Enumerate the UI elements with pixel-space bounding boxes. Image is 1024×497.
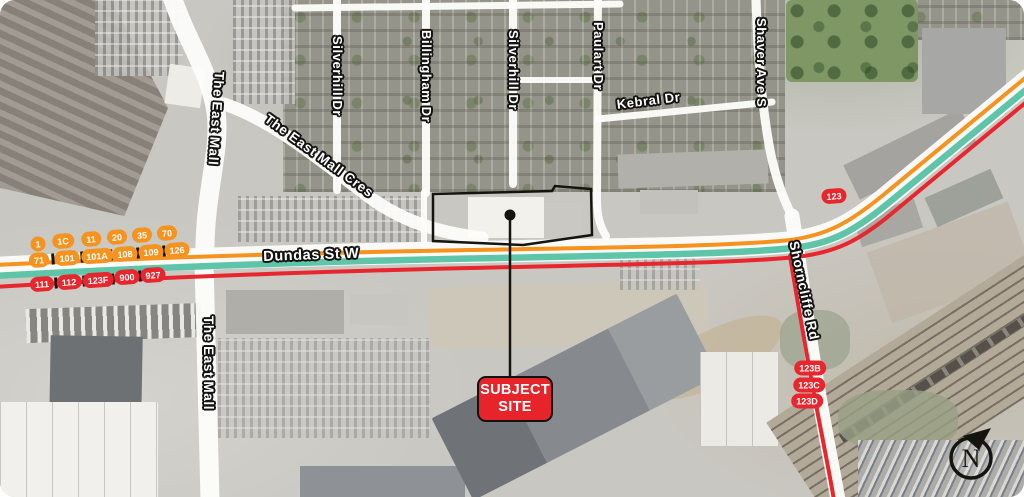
street-label-silverhill-dr-west: Silverhill Dr — [331, 36, 344, 116]
route-badge: 109 — [138, 244, 164, 261]
route-badge: 126 — [164, 242, 190, 259]
street-label-silverhill-dr-east: Silverhill Dr — [507, 30, 520, 110]
route-badge-123d: 123D — [791, 394, 823, 409]
subject-site-label: SUBJECT SITE — [477, 376, 553, 422]
route-badge: 112 — [56, 274, 82, 291]
street-label-dundas-st-w: Dundas St W — [263, 247, 359, 265]
subject-site-dot — [505, 210, 516, 221]
route-badge: 101 — [54, 250, 80, 267]
route-badge: 123F — [82, 271, 113, 288]
street-label-shaver-ave-s: Shaver Ave S — [755, 18, 768, 107]
compass-n-label: N — [962, 444, 981, 473]
subject-site-label-line1: SUBJECT — [480, 382, 550, 399]
route-badge-123c: 123C — [793, 378, 825, 393]
street-label-paulart-dr: Paulart Dr — [592, 22, 605, 90]
route-badge: 108 — [112, 246, 138, 263]
route-badge: 927 — [140, 267, 166, 284]
aerial-map-canvas: The East Mall The East Mall Cres The Eas… — [0, 0, 1024, 497]
street-label-the-east-mall-south: The East Mall — [202, 316, 216, 410]
route-badge: 11 — [81, 231, 102, 247]
street-label-billingham-dr: Billingham Dr — [420, 30, 433, 122]
north-arrow-compass: N — [938, 424, 1002, 488]
route-badge-123b: 123B — [794, 361, 826, 376]
subject-site-label-line2: SITE — [498, 399, 531, 416]
route-badge: 111 — [29, 276, 54, 293]
route-badge-123: 123 — [821, 188, 847, 205]
route-badge: 900 — [114, 269, 140, 286]
route-badge: 101A — [81, 247, 113, 264]
route-badge: 1C — [52, 233, 75, 249]
